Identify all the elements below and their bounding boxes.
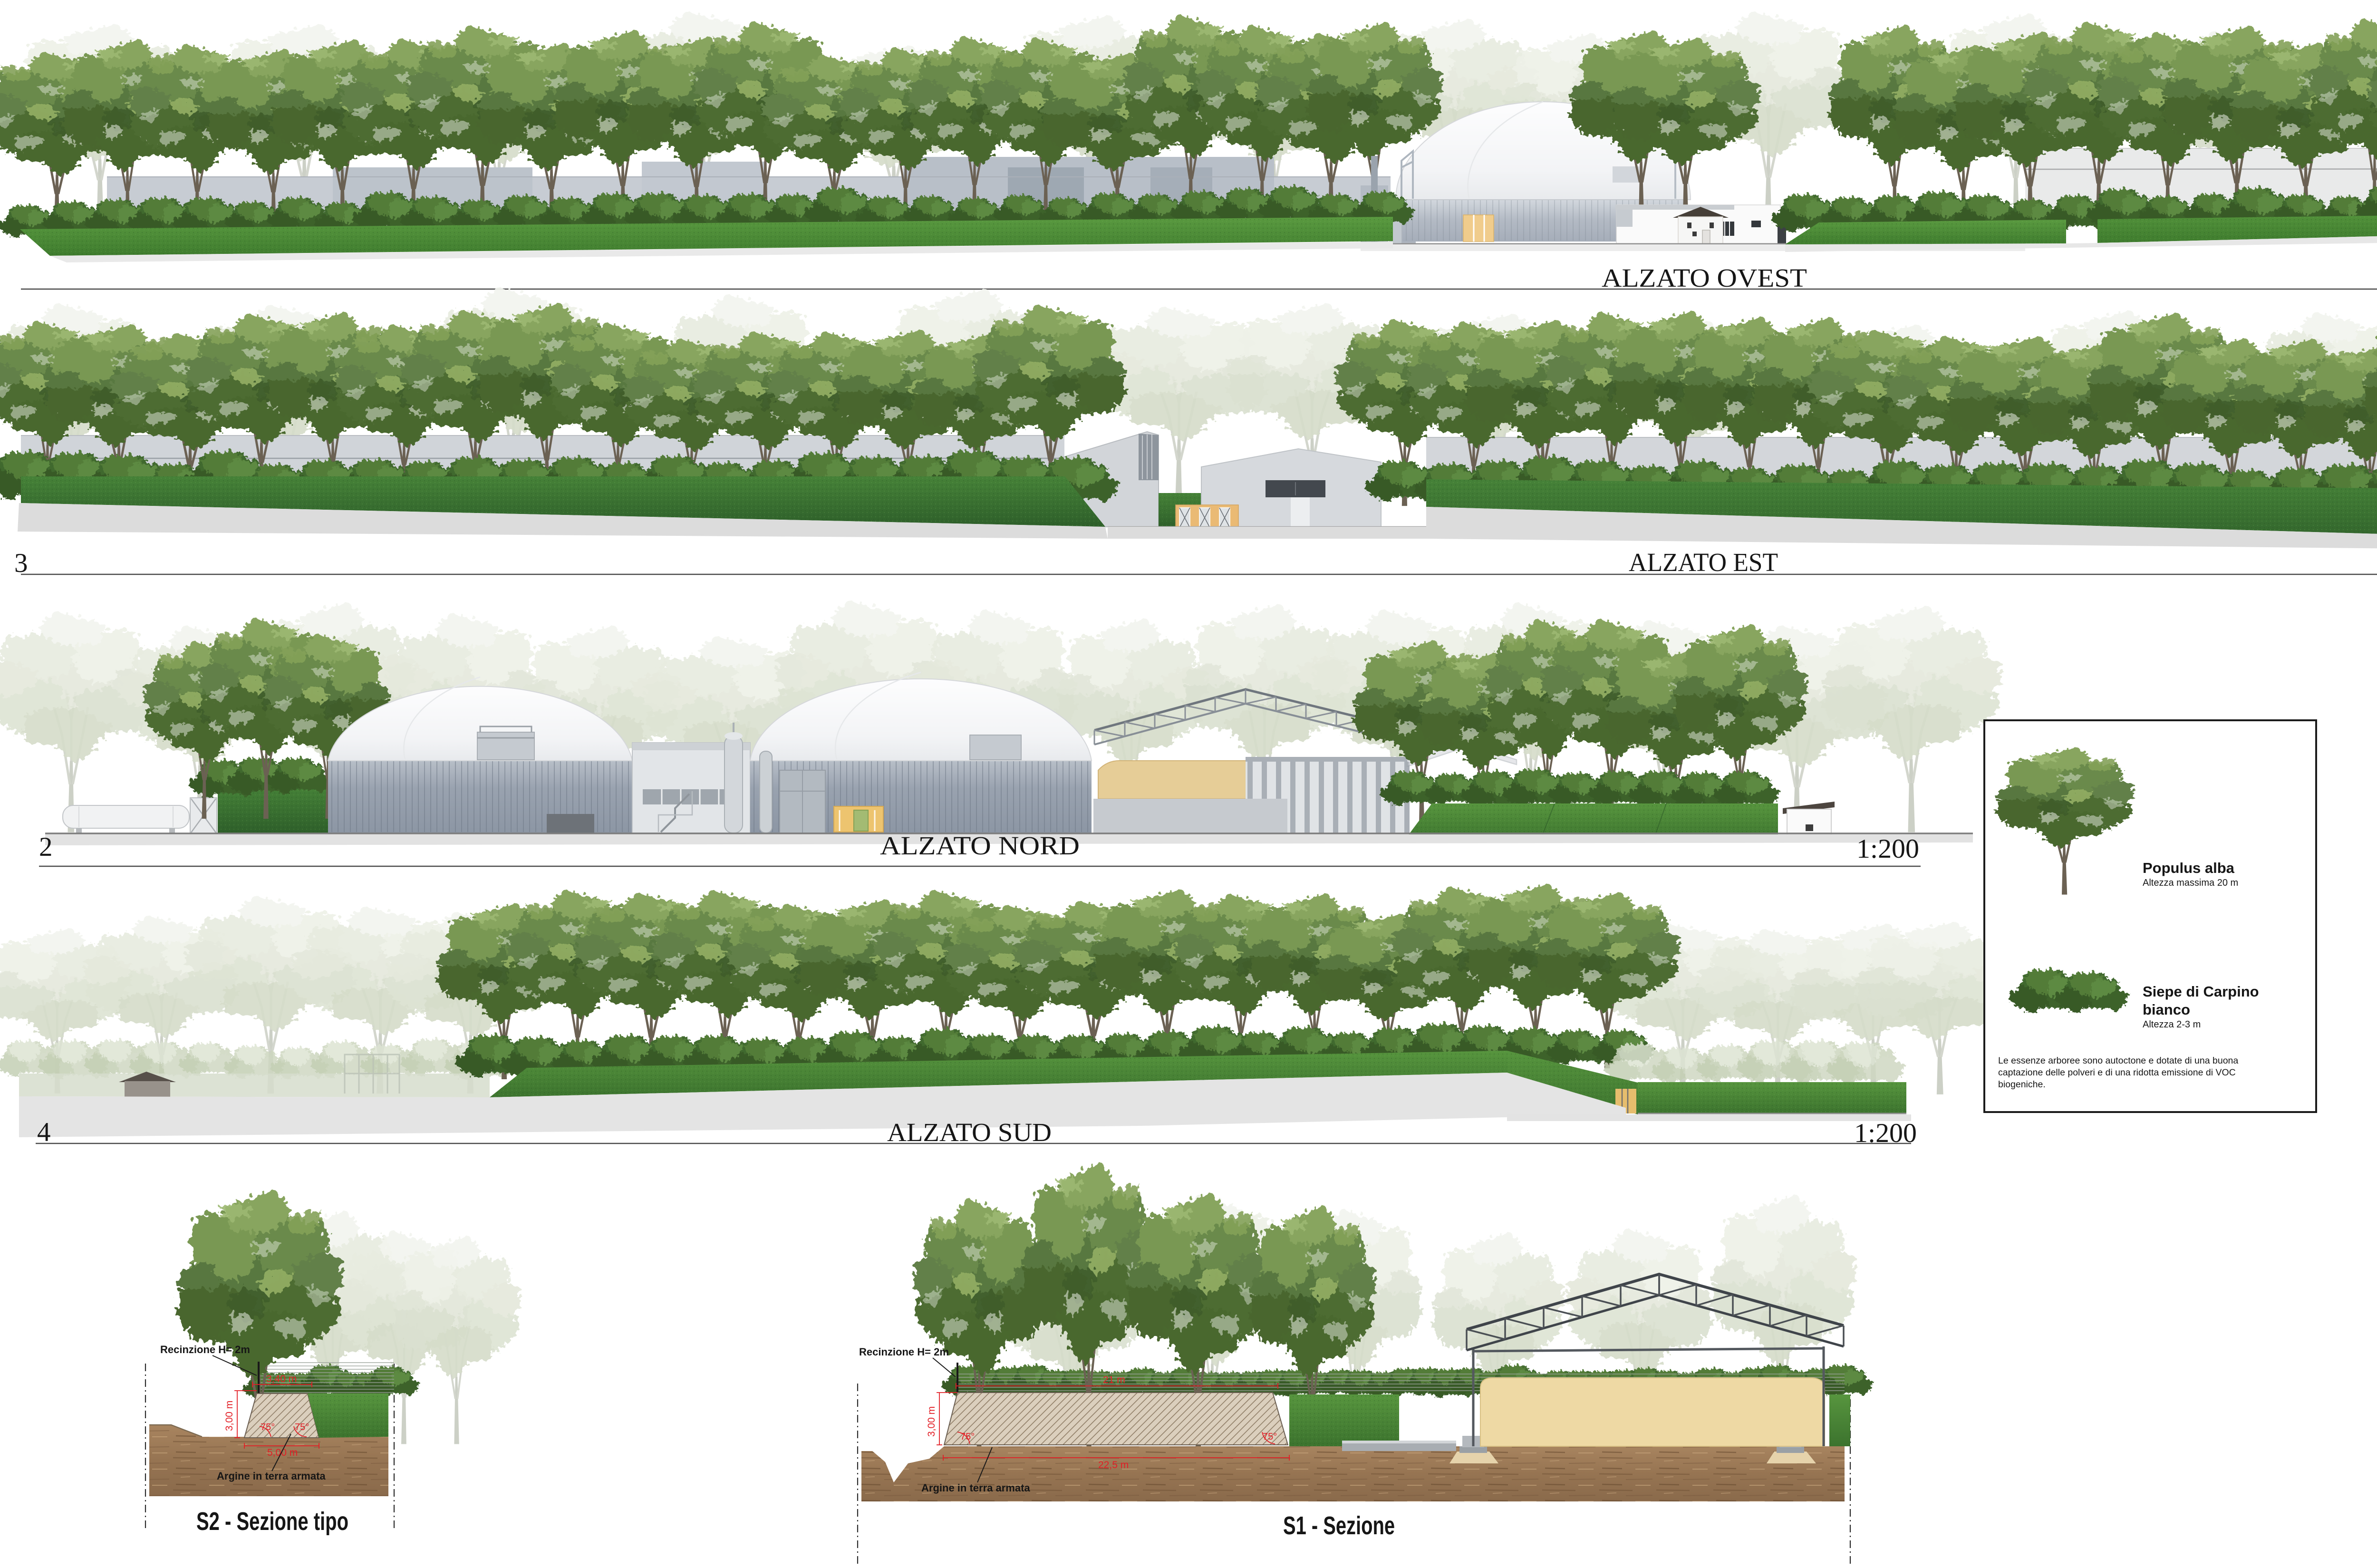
svg-text:3,00 m: 3,00 m [224, 1401, 235, 1431]
svg-text:ALZATO EST: ALZATO EST [1629, 548, 1778, 577]
svg-text:Recinzione H= 2m: Recinzione H= 2m [160, 1344, 250, 1355]
svg-text:Siepe di Carpino: Siepe di Carpino [2143, 983, 2259, 1000]
svg-text:bianco: bianco [2143, 1001, 2190, 1018]
svg-text:ALZATO NORD: ALZATO NORD [880, 831, 1080, 860]
svg-text:22,5 m: 22,5 m [1098, 1460, 1129, 1471]
svg-text:75°: 75° [1263, 1432, 1277, 1442]
svg-text:1:200: 1:200 [1856, 834, 1919, 864]
svg-text:4: 4 [37, 1117, 51, 1147]
svg-text:Le essenze arboree sono autoct: Le essenze arboree sono autoctone e dota… [1998, 1055, 2238, 1066]
svg-text:biogeniche.: biogeniche. [1998, 1079, 2046, 1090]
svg-text:3: 3 [14, 548, 28, 578]
svg-text:Altezza 2-3 m: Altezza 2-3 m [2143, 1019, 2201, 1030]
svg-text:Altezza massima 20 m: Altezza massima 20 m [2143, 878, 2238, 888]
svg-text:3,00 m: 3,00 m [926, 1406, 937, 1437]
svg-text:21 m: 21 m [1103, 1374, 1125, 1385]
svg-text:75°: 75° [960, 1432, 975, 1442]
svg-text:captazione delle polveri e di: captazione delle polveri e di una ridott… [1998, 1067, 2236, 1078]
svg-text:75°: 75° [295, 1422, 309, 1432]
svg-text:Argine in terra armata: Argine in terra armata [217, 1470, 326, 1482]
svg-text:Recinzione H= 2m: Recinzione H= 2m [859, 1346, 949, 1358]
svg-text:Populus alba: Populus alba [2143, 860, 2235, 876]
svg-text:ALZATO SUD: ALZATO SUD [887, 1118, 1052, 1147]
svg-text:S2 - Sezione tipo: S2 - Sezione tipo [196, 1507, 348, 1536]
svg-text:3,40 m: 3,40 m [266, 1374, 297, 1384]
svg-text:Argine in terra armata: Argine in terra armata [921, 1482, 1030, 1494]
svg-text:ALZATO OVEST: ALZATO OVEST [1602, 263, 1807, 292]
svg-text:75°: 75° [261, 1422, 275, 1432]
svg-text:S1 - Sezione: S1 - Sezione [1283, 1511, 1395, 1540]
svg-text:5,00 m: 5,00 m [267, 1447, 298, 1458]
svg-text:2: 2 [39, 832, 53, 862]
